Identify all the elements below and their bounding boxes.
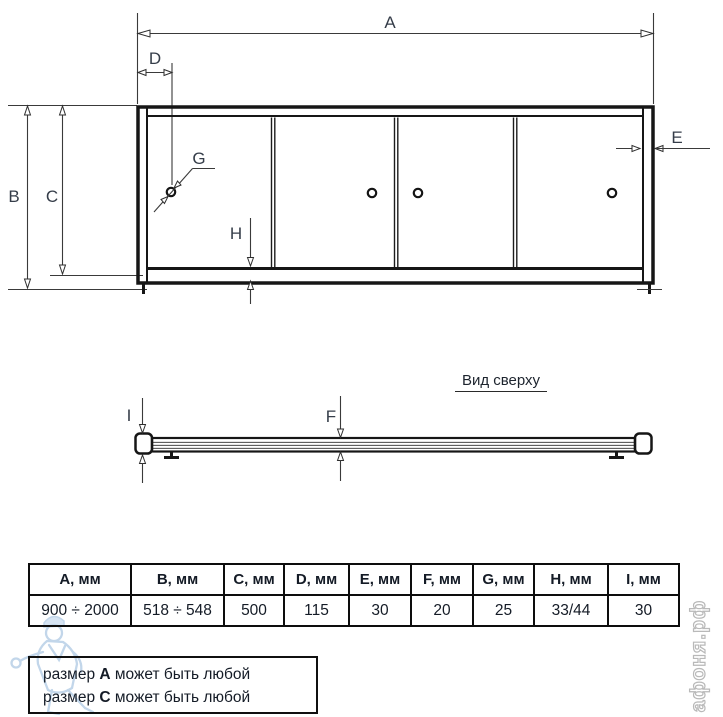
dimension-A: A <box>138 13 654 104</box>
value-H: 33/44 <box>534 595 608 626</box>
value-D: 115 <box>284 595 349 626</box>
value-G: 25 <box>473 595 534 626</box>
value-E: 30 <box>349 595 411 626</box>
value-B: 518 ÷ 548 <box>131 595 224 626</box>
dimension-E: E <box>616 128 710 152</box>
dim-label-G: G <box>192 149 205 168</box>
table-value-row: 900 ÷ 2000 518 ÷ 548 500 115 30 20 25 33… <box>29 595 679 626</box>
col-header-F: F, мм <box>411 564 473 595</box>
dim-label-C: C <box>46 187 58 206</box>
dim-label-H: H <box>230 224 242 243</box>
front-view-drawing: A D B C <box>8 13 710 304</box>
top-view-drawing: I F <box>127 396 652 483</box>
top-view-feet <box>164 452 624 458</box>
handle-hole <box>414 189 422 197</box>
col-header-G: G, мм <box>473 564 534 595</box>
dim-label-B: B <box>8 187 19 206</box>
table-header-row: A, мм B, мм C, мм D, мм E, мм F, мм G, м… <box>29 564 679 595</box>
dim-label-I: I <box>127 406 132 425</box>
bath-screen-dimension-sheet: A D B C <box>0 0 723 717</box>
dim-label-E: E <box>671 128 682 147</box>
value-C: 500 <box>224 595 284 626</box>
dimension-G: G <box>154 149 215 212</box>
dim-label-D: D <box>149 49 161 68</box>
value-I: 30 <box>608 595 679 626</box>
col-header-A: A, мм <box>29 564 131 595</box>
col-header-D: D, мм <box>284 564 349 595</box>
col-header-B: B, мм <box>131 564 224 595</box>
sliding-panels <box>272 118 517 268</box>
screen-frame <box>138 107 662 294</box>
dimension-B-C: B C <box>8 106 147 290</box>
col-header-H: H, мм <box>534 564 608 595</box>
size-note-box: размер A может быть любой размер C может… <box>28 656 318 714</box>
dim-label-A: A <box>384 13 396 32</box>
profile-bar <box>152 438 635 452</box>
dimension-H: H <box>230 218 254 304</box>
panel-handles <box>167 188 616 197</box>
col-header-C: C, мм <box>224 564 284 595</box>
dimensions-table: A, мм B, мм C, мм D, мм E, мм F, мм G, м… <box>28 563 680 627</box>
note-line-1: размер A может быть любой <box>43 663 316 686</box>
value-F: 20 <box>411 595 473 626</box>
dim-label-F: F <box>326 407 336 426</box>
col-header-E: E, мм <box>349 564 411 595</box>
right-end-cap <box>635 434 652 454</box>
note-dim-A: A <box>99 666 110 683</box>
left-end-cap <box>136 434 153 454</box>
handle-hole <box>608 189 616 197</box>
col-header-I: I, мм <box>608 564 679 595</box>
note-dim-C: C <box>99 689 110 706</box>
value-A: 900 ÷ 2000 <box>29 595 131 626</box>
technical-drawing: A D B C <box>0 0 723 500</box>
note-line-2: размер C может быть любой <box>43 686 316 709</box>
handle-hole <box>368 189 376 197</box>
site-watermark: афоня.рф <box>687 597 713 715</box>
mascot-head <box>46 625 62 641</box>
